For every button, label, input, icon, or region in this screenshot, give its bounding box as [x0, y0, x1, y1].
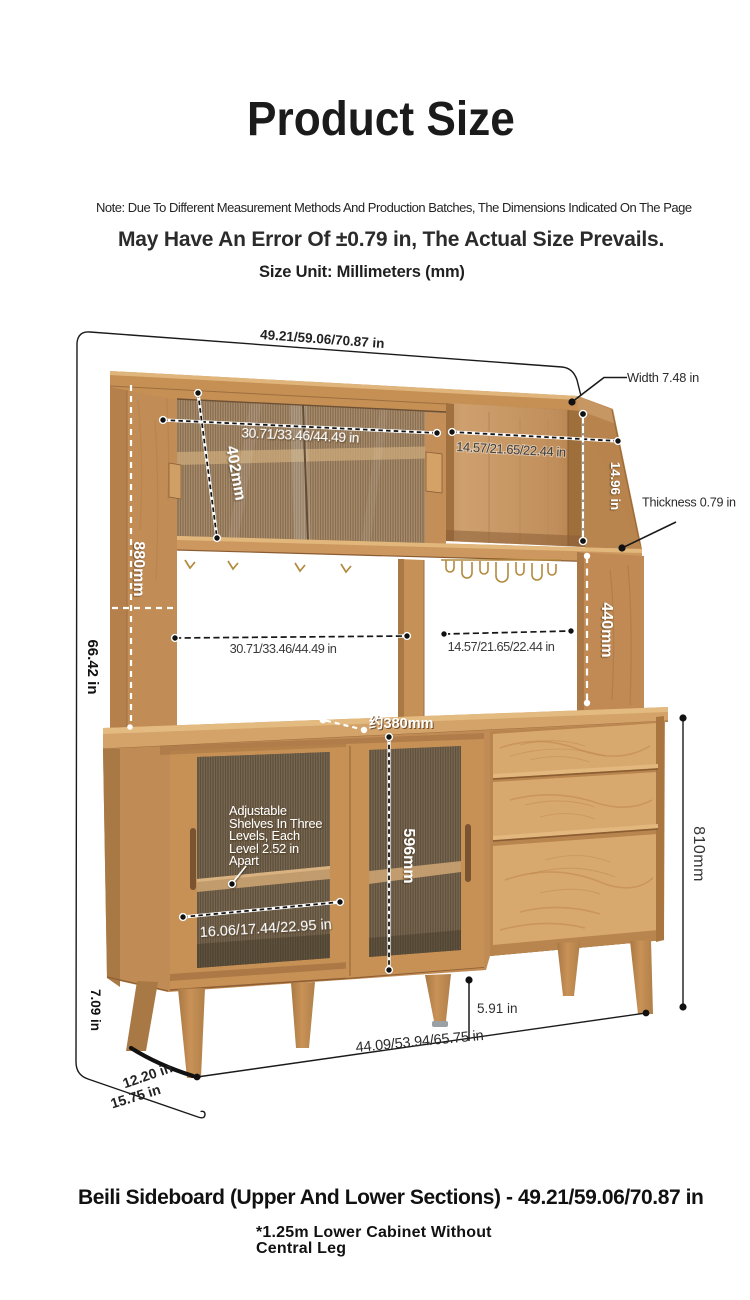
svg-text:440mm: 440mm: [598, 602, 615, 657]
svg-text:44.09/53.94/65.75 in: 44.09/53.94/65.75 in: [355, 1028, 484, 1056]
svg-text:Apart: Apart: [229, 853, 259, 868]
svg-text:约380mm: 约380mm: [369, 714, 433, 732]
svg-text:Width 7.48 in: Width 7.48 in: [627, 370, 699, 385]
svg-text:14.57/21.65/22.44 in: 14.57/21.65/22.44 in: [448, 639, 555, 654]
svg-text:Thickness 0.79 in: Thickness 0.79 in: [642, 496, 736, 510]
svg-text:30.71/33.46/44.49 in: 30.71/33.46/44.49 in: [230, 641, 337, 656]
svg-text:880mm: 880mm: [130, 541, 147, 596]
svg-text:7.09 in: 7.09 in: [88, 989, 103, 1031]
svg-text:596mm: 596mm: [400, 828, 417, 883]
svg-text:810mm: 810mm: [690, 826, 707, 882]
svg-text:5.91 in: 5.91 in: [477, 1001, 518, 1016]
svg-text:14.96 in: 14.96 in: [608, 462, 623, 510]
svg-text:66.42 in: 66.42 in: [84, 639, 101, 694]
svg-text:49.21/59.06/70.87 in: 49.21/59.06/70.87 in: [260, 327, 385, 351]
